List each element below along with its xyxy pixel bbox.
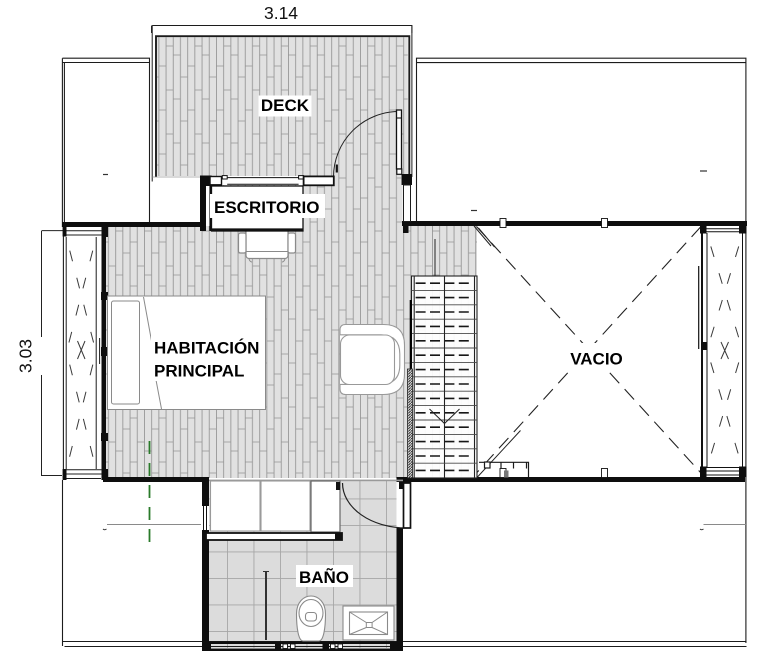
svg-text:3.14: 3.14 xyxy=(264,3,298,23)
svg-text:BAÑO: BAÑO xyxy=(299,567,349,587)
svg-text:HABITACIÓN: HABITACIÓN xyxy=(154,339,259,358)
svg-text:DECK: DECK xyxy=(261,96,310,115)
svg-text:ESCRITORIO: ESCRITORIO xyxy=(214,198,319,217)
svg-text:3.03: 3.03 xyxy=(16,339,36,373)
svg-text:VACIO: VACIO xyxy=(570,350,623,369)
svg-text:PRINCIPAL: PRINCIPAL xyxy=(154,362,244,381)
